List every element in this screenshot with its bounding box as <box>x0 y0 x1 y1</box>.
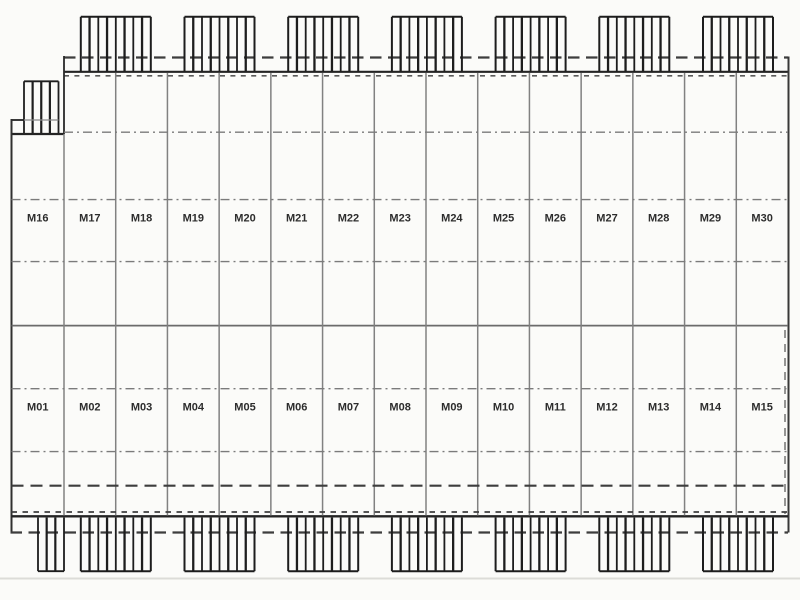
svg-text:M16: M16 <box>27 213 48 225</box>
svg-text:M08: M08 <box>389 402 410 414</box>
svg-text:M13: M13 <box>648 402 669 414</box>
svg-text:M18: M18 <box>131 213 152 225</box>
svg-text:M09: M09 <box>441 402 462 414</box>
svg-text:M30: M30 <box>751 213 772 225</box>
svg-text:M01: M01 <box>27 402 48 414</box>
svg-text:M02: M02 <box>79 402 100 414</box>
svg-text:M11: M11 <box>545 402 566 414</box>
svg-text:M27: M27 <box>596 213 617 225</box>
svg-text:M17: M17 <box>79 213 100 225</box>
svg-text:M19: M19 <box>183 213 204 225</box>
svg-text:M22: M22 <box>338 213 359 225</box>
svg-text:M07: M07 <box>338 402 359 414</box>
svg-text:M14: M14 <box>700 402 722 414</box>
svg-text:M04: M04 <box>183 402 205 414</box>
svg-text:M29: M29 <box>700 213 721 225</box>
svg-text:M25: M25 <box>493 213 514 225</box>
svg-text:M05: M05 <box>234 402 255 414</box>
svg-text:M06: M06 <box>286 402 307 414</box>
svg-text:M20: M20 <box>234 213 255 225</box>
svg-text:M12: M12 <box>596 402 617 414</box>
svg-text:M23: M23 <box>389 213 410 225</box>
svg-text:M15: M15 <box>751 402 772 414</box>
svg-text:M03: M03 <box>131 402 152 414</box>
svg-text:M24: M24 <box>441 213 463 225</box>
svg-text:M21: M21 <box>286 213 307 225</box>
svg-text:M28: M28 <box>648 213 669 225</box>
svg-text:M10: M10 <box>493 402 514 414</box>
svg-text:M26: M26 <box>545 213 566 225</box>
